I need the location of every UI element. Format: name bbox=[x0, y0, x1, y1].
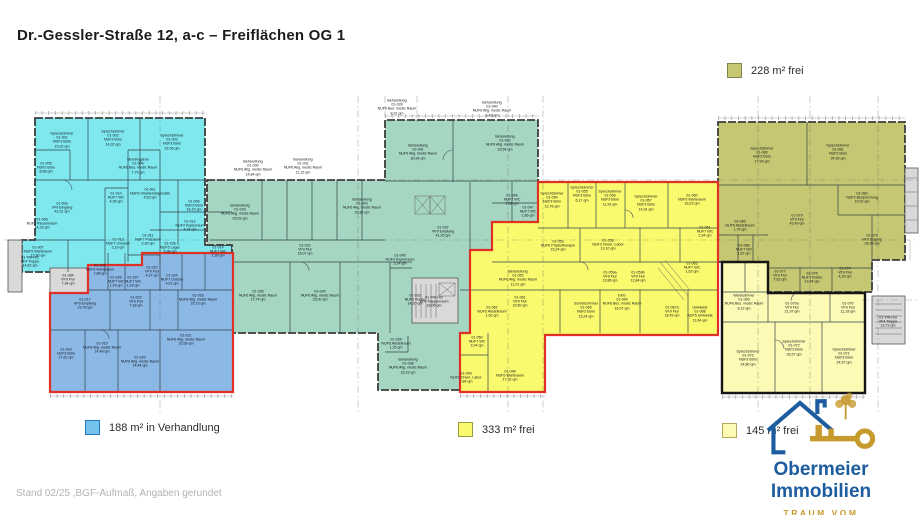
page: Dr.-Gessler-Straße 12, a-c – Freiflächen… bbox=[0, 0, 920, 515]
section-cyan bbox=[22, 118, 232, 272]
company-name: Obermeier Immobilien bbox=[728, 459, 914, 503]
stairwell-right bbox=[872, 296, 905, 344]
legend-blue-label: 188 m² in Verhandlung bbox=[109, 422, 220, 434]
legend-blue-swatch bbox=[85, 420, 100, 435]
key-icon bbox=[810, 425, 873, 446]
section-fills bbox=[22, 118, 905, 393]
legend-olive-swatch bbox=[727, 63, 742, 78]
house-key-icon bbox=[751, 392, 891, 456]
footer-note: Stand 02/25 ,BGF-Aufmaß, Angaben gerunde… bbox=[16, 488, 222, 499]
stairwell-middle bbox=[412, 278, 458, 323]
legend-olive: 228 m² frei bbox=[727, 63, 804, 78]
legend-yellow-swatch bbox=[458, 422, 473, 437]
tagline-row: TRAUM VOM RAUM bbox=[728, 508, 914, 515]
house-icon bbox=[768, 401, 832, 452]
legend-olive-label: 228 m² frei bbox=[751, 65, 804, 77]
legend-blue: 188 m² in Verhandlung bbox=[85, 420, 220, 435]
company-logo: Obermeier Immobilien TRAUM VOM RAUM bbox=[728, 392, 914, 515]
legend-yellow-label: 333 m² frei bbox=[482, 424, 535, 436]
company-tagline: TRAUM VOM RAUM bbox=[765, 508, 877, 515]
tree-icon bbox=[836, 393, 856, 420]
legend-yellow: 333 m² frei bbox=[458, 422, 535, 437]
corridor-gray-left bbox=[50, 268, 88, 293]
stairwell-left-bay bbox=[8, 240, 22, 292]
